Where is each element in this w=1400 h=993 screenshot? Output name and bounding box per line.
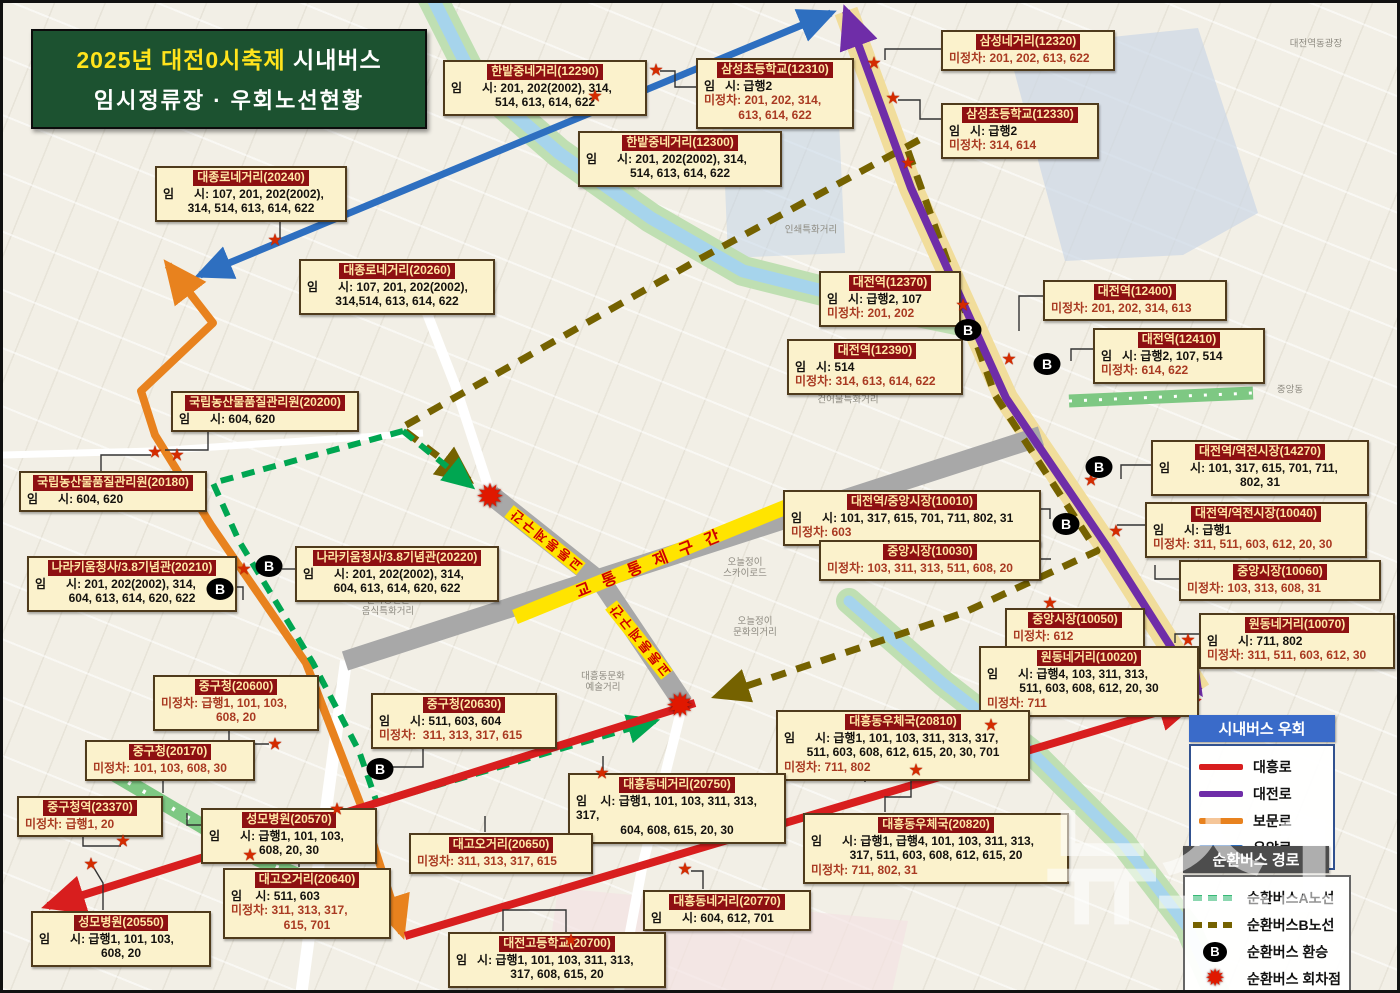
loop-bus-transfer-icon: B xyxy=(1053,513,1080,535)
loop-bus-transfer-icon: B xyxy=(207,578,234,600)
map-place-label: 중앙동 xyxy=(1277,386,1303,397)
legend-line-sample xyxy=(1199,764,1243,770)
stop-temp-routes: 임 시: 514 xyxy=(795,360,955,375)
stop-label-12410: 대전역(12410)임 시: 급행2, 107, 514미정차: 614, 62… xyxy=(1093,328,1265,384)
stop-name: 중구청(20170) xyxy=(129,744,211,760)
stop-name: 중앙시장(10030) xyxy=(883,544,977,560)
stop-temp-routes: 514, 613, 614, 622 xyxy=(586,166,774,181)
stop-skipped-routes: 미정차: 603 xyxy=(791,525,1033,540)
temp-stop-star-icon: ★ xyxy=(1108,523,1123,540)
festival-bus-map: 2025년 대전0시축제 시내버스 임시정류장 · 우회노선현황 교통통제구간교… xyxy=(0,0,1400,993)
map-place-label: 오늘정이 문화의거리 xyxy=(733,617,777,639)
loop-bus-turnaround-icon: ✹ xyxy=(666,689,695,723)
stop-skipped-routes: 미정차: 201, 202 xyxy=(827,306,953,321)
stop-name: 대전역/중앙시장(10010) xyxy=(847,494,977,510)
temp-stop-star-icon: ★ xyxy=(83,856,98,873)
legend-loop-label: 순환버스 회차점 xyxy=(1247,969,1341,989)
stop-skipped-routes: 미정차: 201, 202, 314, xyxy=(704,93,846,108)
legend-loop-label: 순환버스B노선 xyxy=(1247,915,1334,935)
stop-name: 대흥동네거리(20770) xyxy=(669,894,785,910)
legend-loop-row: ✹순환버스 회차점 xyxy=(1193,965,1341,992)
stop-label-12300: 한밭중네거리(12300)임 시: 201, 202(2002), 314,51… xyxy=(578,131,782,187)
stop-label-10010: 대전역/중앙시장(10010)임 시: 101, 317, 615, 701, … xyxy=(783,490,1041,546)
stop-name: 대고오거리(20640) xyxy=(255,872,360,888)
temp-stop-star-icon: ★ xyxy=(1180,632,1195,649)
temp-stop-star-icon: ★ xyxy=(1001,351,1016,368)
temp-stop-star-icon: ★ xyxy=(866,55,881,72)
temp-stop-star-icon: ★ xyxy=(267,736,282,753)
legend-loop: 순환버스 경로 순환버스A노선순환버스B노선B순환버스 환승✹순환버스 회차점 xyxy=(1183,846,1351,993)
legend-loop-body: 순환버스A노선순환버스B노선B순환버스 환승✹순환버스 회차점 xyxy=(1183,875,1351,993)
legend-road-name: 대흥로 xyxy=(1253,757,1292,777)
stop-label-20210: 나라키움청사/3.8기념관(20210)임 시: 201, 202(2002),… xyxy=(27,556,237,612)
stop-temp-routes: 임 시: 급행1, 101, 103, xyxy=(209,829,369,844)
temp-stop-star-icon: ★ xyxy=(677,861,692,878)
stop-label-10030: 중앙시장(10030)미정차: 103, 311, 313, 511, 608,… xyxy=(819,540,1041,581)
stop-name: 원동네거리(10070) xyxy=(1245,617,1350,633)
stop-temp-routes: 604, 608, 615, 20, 30 xyxy=(576,823,778,838)
stop-temp-routes: 임 시: 201, 202(2002), 314, xyxy=(586,152,774,167)
temp-stop-star-icon: ★ xyxy=(955,297,970,314)
stop-skipped-routes: 미정차: 급행1, 101, 103, xyxy=(161,696,311,711)
stop-skipped-routes: 미정차: 311, 511, 603, 612, 30 xyxy=(1207,648,1387,663)
stop-skipped-routes: 615, 701 xyxy=(231,918,383,933)
stop-label-20600: 중구청(20600)미정차: 급행1, 101, 103,608, 20 xyxy=(153,675,319,731)
stop-temp-routes: 임 시: 711, 802 xyxy=(1207,634,1387,649)
stop-label-23370: 중구청역(23370)미정차: 급행1, 20 xyxy=(17,796,163,837)
legend-loop-title: 순환버스 경로 xyxy=(1183,846,1329,873)
label-connector xyxy=(1071,349,1093,361)
stop-name: 대전고등학교(20700) xyxy=(499,936,615,952)
map-title-line1: 2025년 대전0시축제 시내버스 xyxy=(39,41,419,75)
stop-label-20640: 대고오거리(20640)임 시: 511, 603미정차: 311, 313, … xyxy=(223,868,391,939)
stop-temp-routes: 608, 20, 30 xyxy=(209,843,369,858)
label-connector xyxy=(691,871,703,889)
temp-stop-star-icon: ★ xyxy=(147,444,162,461)
stop-label-10020: 원동네거리(10020)임 시: 급행4, 103, 311, 313,511,… xyxy=(979,646,1199,717)
stop-temp-routes: 임 시: 107, 201, 202(2002), xyxy=(307,280,487,295)
stop-label-20260: 대종로네거리(20260)임 시: 107, 201, 202(2002),31… xyxy=(299,259,495,315)
loop-bus-transfer-icon: B xyxy=(367,758,394,780)
legend-detour-row: 대전로 xyxy=(1199,780,1325,807)
stop-temp-routes: 임 시: 급행2, 107 xyxy=(827,292,953,307)
temp-stop-star-icon: ★ xyxy=(236,561,251,578)
stop-name: 삼성네거리(12320) xyxy=(976,34,1081,50)
temp-stop-star-icon: ★ xyxy=(594,765,609,782)
stop-temp-routes: 임 시: 511, 603 xyxy=(231,889,383,904)
stop-label-12290: 한밭중네거리(12290)임 시: 201, 202(2002), 314,51… xyxy=(443,60,647,116)
loop-bus-transfer-icon: B xyxy=(256,555,283,577)
label-connector xyxy=(898,100,941,119)
legend-loop-label: 순환버스 환승 xyxy=(1247,942,1328,962)
map-title: 2025년 대전0시축제 시내버스 임시정류장 · 우회노선현황 xyxy=(31,29,427,129)
legend-loop-row: 순환버스B노선 xyxy=(1193,911,1341,938)
temp-stop-star-icon: ★ xyxy=(329,801,344,818)
stop-skipped-routes: 미정차: 314, 614 xyxy=(949,138,1091,153)
stop-skipped-routes: 613, 614, 622 xyxy=(704,108,846,123)
stop-temp-routes: 임 시: 급행1, 101, 103, 311, 313, xyxy=(456,953,658,968)
map-place-label: 대전역동광장 xyxy=(1290,40,1342,51)
stop-temp-routes: 임 시: 604, 612, 701 xyxy=(651,911,803,926)
stop-skipped-routes: 미정차: 311, 313, 317, 615 xyxy=(417,854,585,869)
stop-skipped-routes: 미정차: 711, 802 xyxy=(784,760,1022,775)
stop-label-20700: 대전고등학교(20700)임 시: 급행1, 101, 103, 311, 31… xyxy=(448,932,666,988)
stop-label-10060: 중앙시장(10060)미정차: 103, 313, 608, 31 xyxy=(1179,560,1381,601)
stop-label-20550: 성모병원(20550)임 시: 급행1, 101, 103,608, 20 xyxy=(31,911,211,967)
temp-stop-star-icon: ★ xyxy=(115,833,130,850)
map-place-label: 건어물특화거리 xyxy=(817,396,878,407)
stop-label-20770: 대흥동네거리(20770)임 시: 604, 612, 701 xyxy=(643,890,811,931)
stop-name: 대전역/역전시장(14270) xyxy=(1195,444,1325,460)
map-place-label: 인쇄특화거리 xyxy=(785,226,837,237)
stop-name: 중구청역(23370) xyxy=(43,800,137,816)
stop-temp-routes: 604, 613, 614, 620, 622 xyxy=(303,581,491,596)
stop-skipped-routes: 미정차: 101, 103, 608, 30 xyxy=(93,761,247,776)
stop-label-12400: 대전역(12400)미정차: 201, 202, 314, 613 xyxy=(1043,280,1227,321)
stop-skipped-routes: 미정차: 급행1, 20 xyxy=(25,817,155,832)
legend-line-sample xyxy=(1199,791,1243,797)
stop-skipped-routes: 미정차: 201, 202, 314, 613 xyxy=(1051,301,1219,316)
temp-stop-star-icon: ★ xyxy=(267,232,282,249)
stop-label-14270: 대전역/역전시장(14270)임 시: 101, 317, 615, 701, … xyxy=(1151,440,1369,496)
legend-turnaround-icon: ✹ xyxy=(1205,967,1225,991)
stop-label-10040: 대전역/역전시장(10040)임 시: 급행1미정차: 311, 511, 60… xyxy=(1145,502,1367,558)
legend-line-sample xyxy=(1199,818,1243,824)
stop-temp-routes: 317, 511, 603, 608, 612, 615, 20 xyxy=(811,848,1061,863)
stop-label-12330: 삼성초등학교(12330)임 시: 급행2미정차: 314, 614 xyxy=(941,103,1099,159)
stop-label-20180: 국립농산물품질관리원(20180)임 시: 604, 620 xyxy=(19,471,207,512)
stop-name: 대종로네거리(20260) xyxy=(339,263,455,279)
stop-temp-routes: 임 시: 101, 317, 615, 701, 711, 802, 31 xyxy=(791,511,1033,526)
stop-label-12320: 삼성네거리(12320)미정차: 201, 202, 613, 622 xyxy=(941,30,1115,71)
loop-bus-turnaround-icon: ✹ xyxy=(476,480,505,514)
temp-stop-star-icon: ★ xyxy=(885,90,900,107)
stop-name: 대흥동우체국(20820) xyxy=(878,817,994,833)
temp-stop-star-icon: ★ xyxy=(169,447,184,464)
label-connector xyxy=(1019,296,1043,331)
stop-temp-routes: 임 시: 604, 620 xyxy=(27,492,199,507)
stop-label-12310: 삼성초등학교(12310)임 시: 급행2미정차: 201, 202, 314,… xyxy=(696,58,854,129)
temp-stop-star-icon: ★ xyxy=(587,88,602,105)
stop-name: 대전역/역전시장(10040) xyxy=(1191,506,1321,522)
stop-label-20630: 중구청(20630)임 시: 511, 603, 604미정차: 311, 31… xyxy=(371,693,557,749)
stop-temp-routes: 511, 603, 608, 612, 20, 30 xyxy=(987,681,1191,696)
stop-temp-routes: 314, 514, 613, 614, 622 xyxy=(163,201,339,216)
stop-name: 대흥동네거리(20750) xyxy=(619,777,735,793)
stop-skipped-routes: 미정차: 614, 622 xyxy=(1101,363,1257,378)
stop-label-10050: 중앙시장(10050)미정차: 612 xyxy=(1005,608,1145,649)
stop-name: 중앙시장(10060) xyxy=(1233,564,1327,580)
stop-name: 대전역(12370) xyxy=(849,275,931,291)
legend-detour-row: 보문로 xyxy=(1199,807,1325,834)
label-connector xyxy=(885,49,941,60)
label-connector xyxy=(1121,465,1151,479)
stop-name: 대전역(12390) xyxy=(834,343,916,359)
legend-road-name: 보문로 xyxy=(1253,811,1292,831)
stop-temp-routes: 514, 613, 614, 622 xyxy=(451,95,639,110)
stop-name: 대전역(12410) xyxy=(1138,332,1220,348)
stop-temp-routes: 임 시: 급행1, 101, 103, 311, 313, 317, xyxy=(576,794,778,823)
stop-name: 한밭중네거리(12300) xyxy=(622,135,738,151)
stop-skipped-routes: 미정차: 612 xyxy=(1013,629,1137,644)
temp-stop-star-icon: ★ xyxy=(242,847,257,864)
stop-temp-routes: 임 시: 급행1, 급행4, 101, 103, 311, 313, xyxy=(811,834,1061,849)
stop-temp-routes: 608, 20 xyxy=(39,946,203,961)
loop-bus-transfer-icon: B xyxy=(955,319,982,341)
temp-stop-star-icon: ★ xyxy=(563,932,578,949)
stop-temp-routes: 임 시: 604, 620 xyxy=(179,412,351,427)
stop-label-12390: 대전역(12390)임 시: 514미정차: 314, 613, 614, 62… xyxy=(787,339,963,395)
stop-name: 중구청(20630) xyxy=(423,697,505,713)
stop-skipped-routes: 미정차: 311, 511, 603, 612, 20, 30 xyxy=(1153,537,1359,552)
stop-skipped-routes: 미정차: 103, 311, 313, 511, 608, 20 xyxy=(827,561,1033,576)
stop-name: 중구청(20600) xyxy=(195,679,277,695)
stop-skipped-routes: 미정차: 103, 313, 608, 31 xyxy=(1187,581,1373,596)
stop-temp-routes: 임 시: 급행1 xyxy=(1153,523,1359,538)
temp-stop-star-icon: ★ xyxy=(983,717,998,734)
stop-temp-routes: 임 시: 107, 201, 202(2002), xyxy=(163,187,339,202)
temp-stop-star-icon: ★ xyxy=(908,762,923,779)
stop-temp-routes: 임 시: 101, 317, 615, 701, 711, xyxy=(1159,461,1361,476)
stop-name: 삼성초등학교(12310) xyxy=(717,62,833,78)
stop-name: 나라키움청사/3.8기념관(20210) xyxy=(48,560,217,576)
stop-name: 한밭중네거리(12290) xyxy=(487,64,603,80)
stop-label-20220: 나라키움청사/3.8기념관(20220)임 시: 201, 202(2002),… xyxy=(295,546,499,602)
legend-loop-row: B순환버스 환승 xyxy=(1193,938,1341,965)
legend-loop-row: 순환버스A노선 xyxy=(1193,884,1341,911)
stop-temp-routes: 임 시: 201, 202(2002), 314, xyxy=(303,567,491,582)
stop-name: 성모병원(20550) xyxy=(74,915,168,931)
stop-label-20240: 대종로네거리(20240)임 시: 107, 201, 202(2002),31… xyxy=(155,166,347,222)
legend-loop-label: 순환버스A노선 xyxy=(1247,888,1334,908)
stop-name: 삼성초등학교(12330) xyxy=(962,107,1078,123)
label-connector xyxy=(1155,565,1179,579)
legend-dashed-line-sample xyxy=(1193,895,1237,901)
label-connector xyxy=(101,455,151,471)
temp-stop-star-icon: ★ xyxy=(1042,595,1057,612)
stop-temp-routes: 임 시: 201, 202(2002), 314, xyxy=(451,81,639,96)
stop-temp-routes: 임 시: 급행2, 107, 514 xyxy=(1101,349,1257,364)
legend-dashed-line-sample xyxy=(1193,922,1237,928)
stop-label-20200: 국립농산물품질관리원(20200)임 시: 604, 620 xyxy=(171,391,359,432)
temp-stop-star-icon: ★ xyxy=(900,155,915,172)
stop-temp-routes: 임 시: 201, 202(2002), 314, xyxy=(35,577,229,592)
stop-temp-routes: 802, 31 xyxy=(1159,475,1361,490)
stop-name: 대흥동우체국(20810) xyxy=(845,714,961,730)
stop-temp-routes: 임 시: 511, 603, 604 xyxy=(379,714,549,729)
stop-temp-routes: 임 시: 급행1, 101, 103, xyxy=(39,932,203,947)
stop-temp-routes: 317, 608, 615, 20 xyxy=(456,967,658,982)
stop-temp-routes: 604, 613, 614, 620, 622 xyxy=(35,591,229,606)
map-place-label: 대흥동문화 예술거리 xyxy=(581,672,625,694)
stop-name: 국립농산물품질관리원(20180) xyxy=(33,475,193,491)
stop-name: 중앙시장(10050) xyxy=(1028,612,1122,628)
stop-name: 성모병원(20570) xyxy=(242,812,336,828)
stop-temp-routes: 314,514, 613, 614, 622 xyxy=(307,294,487,309)
loop-bus-transfer-icon: B xyxy=(1086,456,1113,478)
stop-temp-routes: 임 시: 급행2 xyxy=(704,79,846,94)
stop-label-10070: 원동네거리(10070)임 시: 711, 802미정차: 311, 511, … xyxy=(1199,613,1395,669)
stop-name: 국립농산물품질관리원(20200) xyxy=(185,395,345,411)
loop-bus-transfer-icon: B xyxy=(1034,353,1061,375)
stop-temp-routes: 511, 603, 608, 612, 615, 20, 30, 701 xyxy=(784,745,1022,760)
stop-skipped-routes: 미정차: 711, 802, 31 xyxy=(811,863,1061,878)
stop-label-20650: 대고오거리(20650)미정차: 311, 313, 317, 615 xyxy=(409,833,593,874)
stop-skipped-routes: 미정차: 311, 313, 317, xyxy=(231,903,383,918)
stop-skipped-routes: 608, 20 xyxy=(161,710,311,725)
stop-label-20750: 대흥동네거리(20750)임 시: 급행1, 101, 103, 311, 31… xyxy=(568,773,786,844)
stop-temp-routes: 임 시: 급행4, 103, 311, 313, xyxy=(987,667,1191,682)
stop-name: 대고오거리(20650) xyxy=(449,837,554,853)
legend-detour-title: 시내버스 우회 xyxy=(1189,715,1335,742)
stop-name: 대종로네거리(20240) xyxy=(193,170,309,186)
map-place-label: 오늘정이 스카이로드 xyxy=(723,558,767,580)
stop-skipped-routes: 미정차: 311, 313, 317, 615 xyxy=(379,728,549,743)
temp-stop-star-icon: ★ xyxy=(648,62,663,79)
legend-road-name: 대전로 xyxy=(1253,784,1292,804)
legend-transfer-icon: B xyxy=(1203,942,1227,962)
stop-label-20170: 중구청(20170)미정차: 101, 103, 608, 30 xyxy=(85,740,255,781)
legend-detour-row: 대흥로 xyxy=(1199,753,1325,780)
stop-temp-routes: 임 시: 급행2 xyxy=(949,124,1091,139)
stop-name: 대전역(12400) xyxy=(1094,284,1176,300)
stop-skipped-routes: 미정차: 711 xyxy=(987,696,1191,711)
stop-label-20820: 대흥동우체국(20820)임 시: 급행1, 급행4, 101, 103, 31… xyxy=(803,813,1069,884)
stop-label-12370: 대전역(12370)임 시: 급행2, 107미정차: 201, 202 xyxy=(819,271,961,327)
stop-skipped-routes: 미정차: 201, 202, 613, 622 xyxy=(949,51,1107,66)
map-title-line2: 임시정류장 · 우회노선현황 xyxy=(39,83,419,115)
stop-label-20570: 성모병원(20570)임 시: 급행1, 101, 103,608, 20, 3… xyxy=(201,808,377,864)
stop-name: 원동네거리(10020) xyxy=(1037,650,1142,666)
stop-skipped-routes: 미정차: 314, 613, 614, 622 xyxy=(795,374,955,389)
stop-name: 나라키움청사/3.8기념관(20220) xyxy=(313,550,482,566)
